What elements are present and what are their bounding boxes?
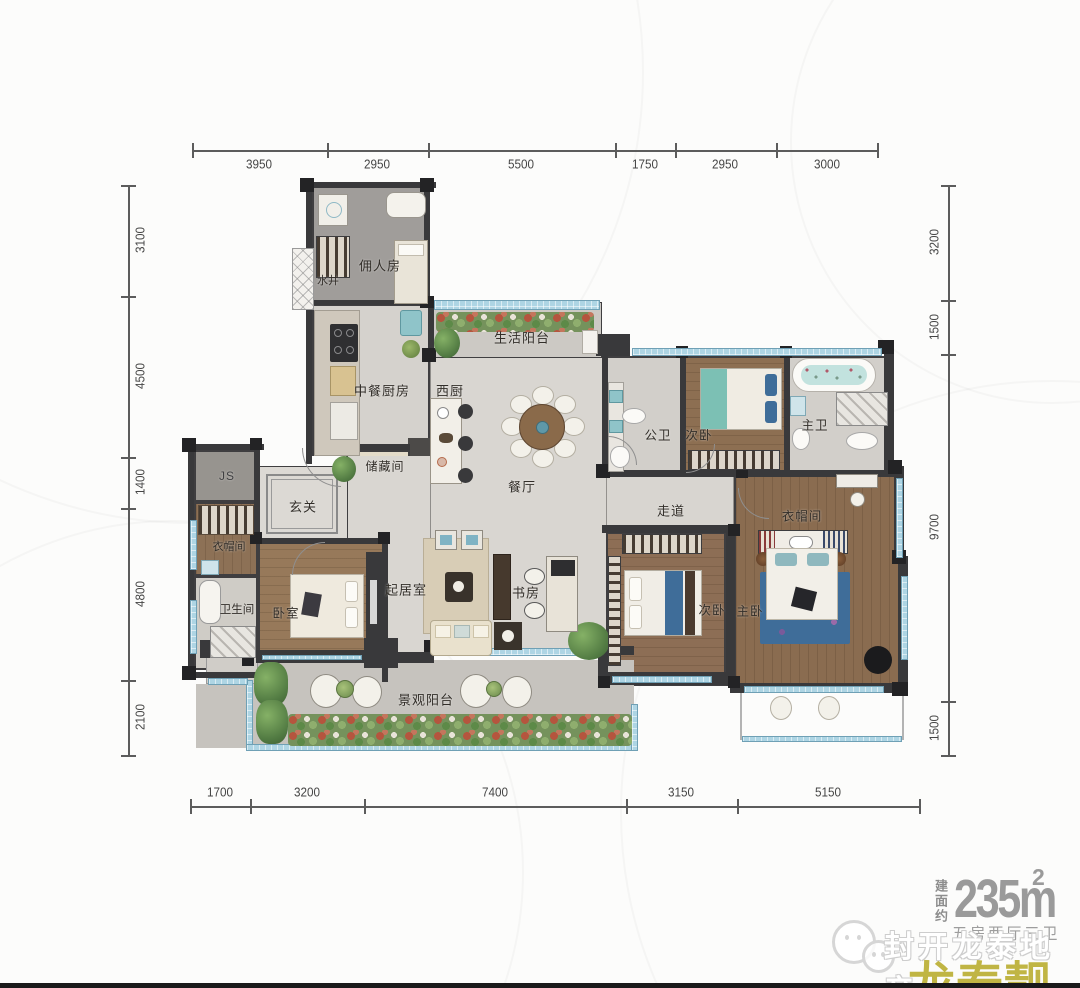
armchair <box>461 530 483 550</box>
wall-post <box>728 524 740 536</box>
burner <box>334 346 342 354</box>
lounge-chair <box>502 676 532 708</box>
balcony-plant <box>434 328 460 358</box>
pillow <box>345 607 358 628</box>
dim-value: 3950 <box>246 157 272 172</box>
tv-screen <box>370 580 377 624</box>
room-label-master-bedroom: 主卧 <box>736 601 763 620</box>
sofa <box>430 620 492 656</box>
dim-value: 3000 <box>814 157 840 172</box>
dim-tick <box>615 143 617 158</box>
stove <box>330 324 358 362</box>
pillow-teal <box>807 553 829 566</box>
balcony-seat <box>818 696 840 720</box>
room-label-bedroom-left: 卧室 <box>272 603 299 622</box>
balcony-table <box>486 681 502 697</box>
wardrobe-bed2-bottom <box>622 534 702 554</box>
dim-value: 4800 <box>133 581 148 607</box>
herb-plate <box>402 340 420 358</box>
dim-value: 9700 <box>927 514 942 540</box>
flower-bed <box>288 714 632 746</box>
dim-tick <box>364 799 366 814</box>
dim-tick <box>190 799 192 814</box>
bed-left <box>290 574 364 638</box>
room-label-living: 起居室 <box>385 580 427 599</box>
island-dish <box>439 433 453 443</box>
tv-wall <box>366 552 382 652</box>
room-label-master-cloak: 衣帽间 <box>782 506 823 525</box>
window <box>190 600 197 654</box>
dining-chair <box>563 417 585 436</box>
room-label-dining: 餐厅 <box>508 477 536 496</box>
washer-drum <box>326 202 342 218</box>
side-table-plate <box>502 630 514 642</box>
bed-master <box>766 548 838 620</box>
water-well <box>292 248 314 310</box>
floor-balcony-left <box>196 684 252 748</box>
dim-tick <box>192 143 194 158</box>
window-rail <box>742 736 902 742</box>
wall <box>726 532 735 686</box>
dim-tick <box>941 701 956 703</box>
pillow <box>629 605 642 629</box>
dim-value: 5150 <box>815 785 841 800</box>
dressing-table <box>836 474 878 488</box>
area-label: 建面约 <box>934 879 947 924</box>
wall-post <box>728 676 740 688</box>
room-label-storage: 储藏间 <box>365 458 404 475</box>
dim-value: 4500 <box>133 363 148 389</box>
bathtub-master <box>792 358 876 392</box>
shower-left <box>210 626 256 658</box>
bathtub-water <box>801 365 867 385</box>
dim-value: 1500 <box>927 715 942 741</box>
dim-line <box>948 185 950 755</box>
sofa-cushion <box>454 625 470 638</box>
fridge <box>330 402 358 440</box>
dressing-stool <box>850 492 865 507</box>
wall <box>306 182 312 464</box>
sofa-cushion <box>473 625 489 638</box>
dim-tick <box>327 143 329 158</box>
balcony-box <box>582 330 598 354</box>
column-round <box>864 646 892 674</box>
bed-runner-blue <box>665 571 683 635</box>
bed2-bottom <box>624 570 702 636</box>
wechat-icon-eye <box>857 935 861 940</box>
foyer-plant <box>332 456 356 482</box>
room-label-chinese-kitchen: 中餐厨房 <box>354 381 410 400</box>
maid-pillow <box>398 244 424 256</box>
dim-value: 1500 <box>927 314 942 340</box>
dim-tick <box>941 185 956 187</box>
room-label-bedroom2-bottom: 次卧 <box>698 600 725 619</box>
window <box>434 300 600 310</box>
room-label-js: JS <box>219 469 235 483</box>
room-label-master-bath: 主卫 <box>801 415 828 434</box>
desk-monitor <box>551 560 575 576</box>
sink-left <box>201 560 219 575</box>
wall-post <box>182 438 196 452</box>
basin <box>609 420 623 433</box>
bar-stool <box>458 404 473 419</box>
island-bowl <box>437 457 447 467</box>
dim-value: 5500 <box>508 157 534 172</box>
wechat-icon-eye <box>845 935 849 940</box>
dining-table <box>519 404 565 450</box>
dim-tick <box>877 143 879 158</box>
room-label-well: 水井 <box>317 272 339 288</box>
dim-value: 2950 <box>712 157 738 172</box>
room-label-foyer: 玄关 <box>289 497 317 516</box>
dim-tick <box>121 296 136 298</box>
pillow <box>629 577 642 601</box>
window <box>190 520 197 570</box>
dim-value: 3100 <box>133 227 148 253</box>
bar-stool <box>458 436 473 451</box>
window <box>262 655 362 660</box>
sink-oval <box>622 408 646 424</box>
burner <box>334 329 342 337</box>
table-centerpiece <box>536 421 549 434</box>
room-label-bath-left: 卫生间 <box>220 601 255 617</box>
window <box>632 348 882 356</box>
balcony-table <box>336 680 354 698</box>
burner <box>346 346 354 354</box>
washing-machine <box>318 194 348 226</box>
armchair <box>435 530 457 550</box>
bed-throw <box>301 592 322 618</box>
pillow <box>345 581 358 602</box>
dim-line <box>190 806 920 808</box>
wall-post <box>892 682 908 696</box>
floor-plan-canvas: 3950 2950 5500 1750 2950 3000 3100 4500 … <box>0 0 1080 988</box>
bed2-top <box>700 368 782 430</box>
dim-tick <box>675 143 677 158</box>
room-label-public-bath: 公卫 <box>644 425 671 444</box>
wall-post <box>250 438 262 450</box>
window <box>612 676 712 683</box>
wall <box>254 444 260 544</box>
bed-blanket-teal <box>701 369 727 429</box>
balcony-rail <box>631 704 638 751</box>
island-plate <box>437 407 449 419</box>
balcony-seat <box>770 696 792 720</box>
dim-tick <box>941 300 956 302</box>
wardrobe-tall <box>608 556 621 666</box>
room-label-maid: 佣人房 <box>359 256 401 275</box>
wall <box>306 182 436 188</box>
wall-post <box>420 178 434 192</box>
wechat-icon-eye <box>872 952 876 957</box>
bed-throw-dark <box>791 587 817 612</box>
dim-value: 2100 <box>133 704 148 730</box>
dim-tick <box>250 799 252 814</box>
coffee-table <box>445 572 473 602</box>
wall-post <box>888 460 902 474</box>
side-table <box>494 622 522 650</box>
balcony-rail <box>208 678 248 685</box>
dim-tick <box>919 799 921 814</box>
armchair-cushion <box>466 535 478 545</box>
dim-value: 1700 <box>207 785 233 800</box>
dim-tick <box>737 799 739 814</box>
room-label-bedroom2-top: 次卧 <box>685 425 712 444</box>
sofa-cushion <box>435 625 451 638</box>
pillow-blue <box>765 374 777 396</box>
kitchen-sink <box>400 310 422 336</box>
dim-value: 1750 <box>632 157 658 172</box>
dim-value: 2950 <box>364 157 390 172</box>
dim-tick <box>428 143 430 158</box>
wall-post <box>300 178 314 192</box>
dim-tick <box>121 508 136 510</box>
dim-tick <box>121 457 136 459</box>
dim-line <box>128 185 130 755</box>
pillow-teal <box>775 553 797 566</box>
window <box>901 576 908 660</box>
dim-value: 7400 <box>482 785 508 800</box>
area-superscript: 2 <box>1032 864 1045 891</box>
bed-frame <box>685 571 695 635</box>
armchair-cushion <box>440 535 452 545</box>
lounge-chair <box>352 676 382 708</box>
image-bottom-border <box>0 983 1080 988</box>
wall <box>602 525 736 533</box>
divider-shelf <box>493 554 511 620</box>
dining-chair <box>532 386 554 405</box>
wall-post <box>182 666 196 680</box>
sink-oval <box>846 432 878 450</box>
room-label-life-balcony: 生活阳台 <box>494 328 550 347</box>
pillow-blue <box>765 401 777 423</box>
room-label-study: 书房 <box>512 583 540 602</box>
window <box>744 686 884 693</box>
balcony-shrub <box>256 700 288 744</box>
dim-value: 1400 <box>133 469 148 495</box>
logo-text: 龙泰靓居 <box>908 946 1073 988</box>
shower-master <box>836 392 888 426</box>
study-desk <box>546 556 578 632</box>
coffee-table-tray <box>453 581 464 592</box>
balcony-rail <box>246 680 253 750</box>
dim-tick <box>776 143 778 158</box>
kitchen-cabinet <box>330 366 356 396</box>
room-label-west-kitchen: 西厨 <box>436 381 464 400</box>
window <box>896 478 903 558</box>
dim-value: 3200 <box>927 229 942 255</box>
room-label-view-balcony: 景观阳台 <box>398 690 454 709</box>
dim-value: 3150 <box>668 785 694 800</box>
maid-tub <box>386 192 426 218</box>
dining-chair <box>532 449 554 468</box>
dim-value: 3200 <box>294 785 320 800</box>
dim-tick <box>941 755 956 757</box>
sink-master <box>790 396 806 416</box>
burner <box>346 329 354 337</box>
wall-post <box>422 348 436 362</box>
room-label-corridor: 走道 <box>657 501 685 520</box>
bathtub-left <box>199 580 221 624</box>
dim-tick <box>626 799 628 814</box>
dim-tick <box>121 755 136 757</box>
dim-tick <box>121 185 136 187</box>
basin <box>609 390 623 403</box>
bar-stool <box>458 468 473 483</box>
wall-post <box>598 676 610 688</box>
wardrobe-left <box>198 505 254 535</box>
dim-tick <box>121 680 136 682</box>
background-swirl <box>790 0 1080 404</box>
study-chair <box>524 602 545 619</box>
room-label-cloak-left: 衣帽间 <box>213 538 246 554</box>
dim-tick <box>941 354 956 356</box>
wall-post <box>378 532 390 544</box>
